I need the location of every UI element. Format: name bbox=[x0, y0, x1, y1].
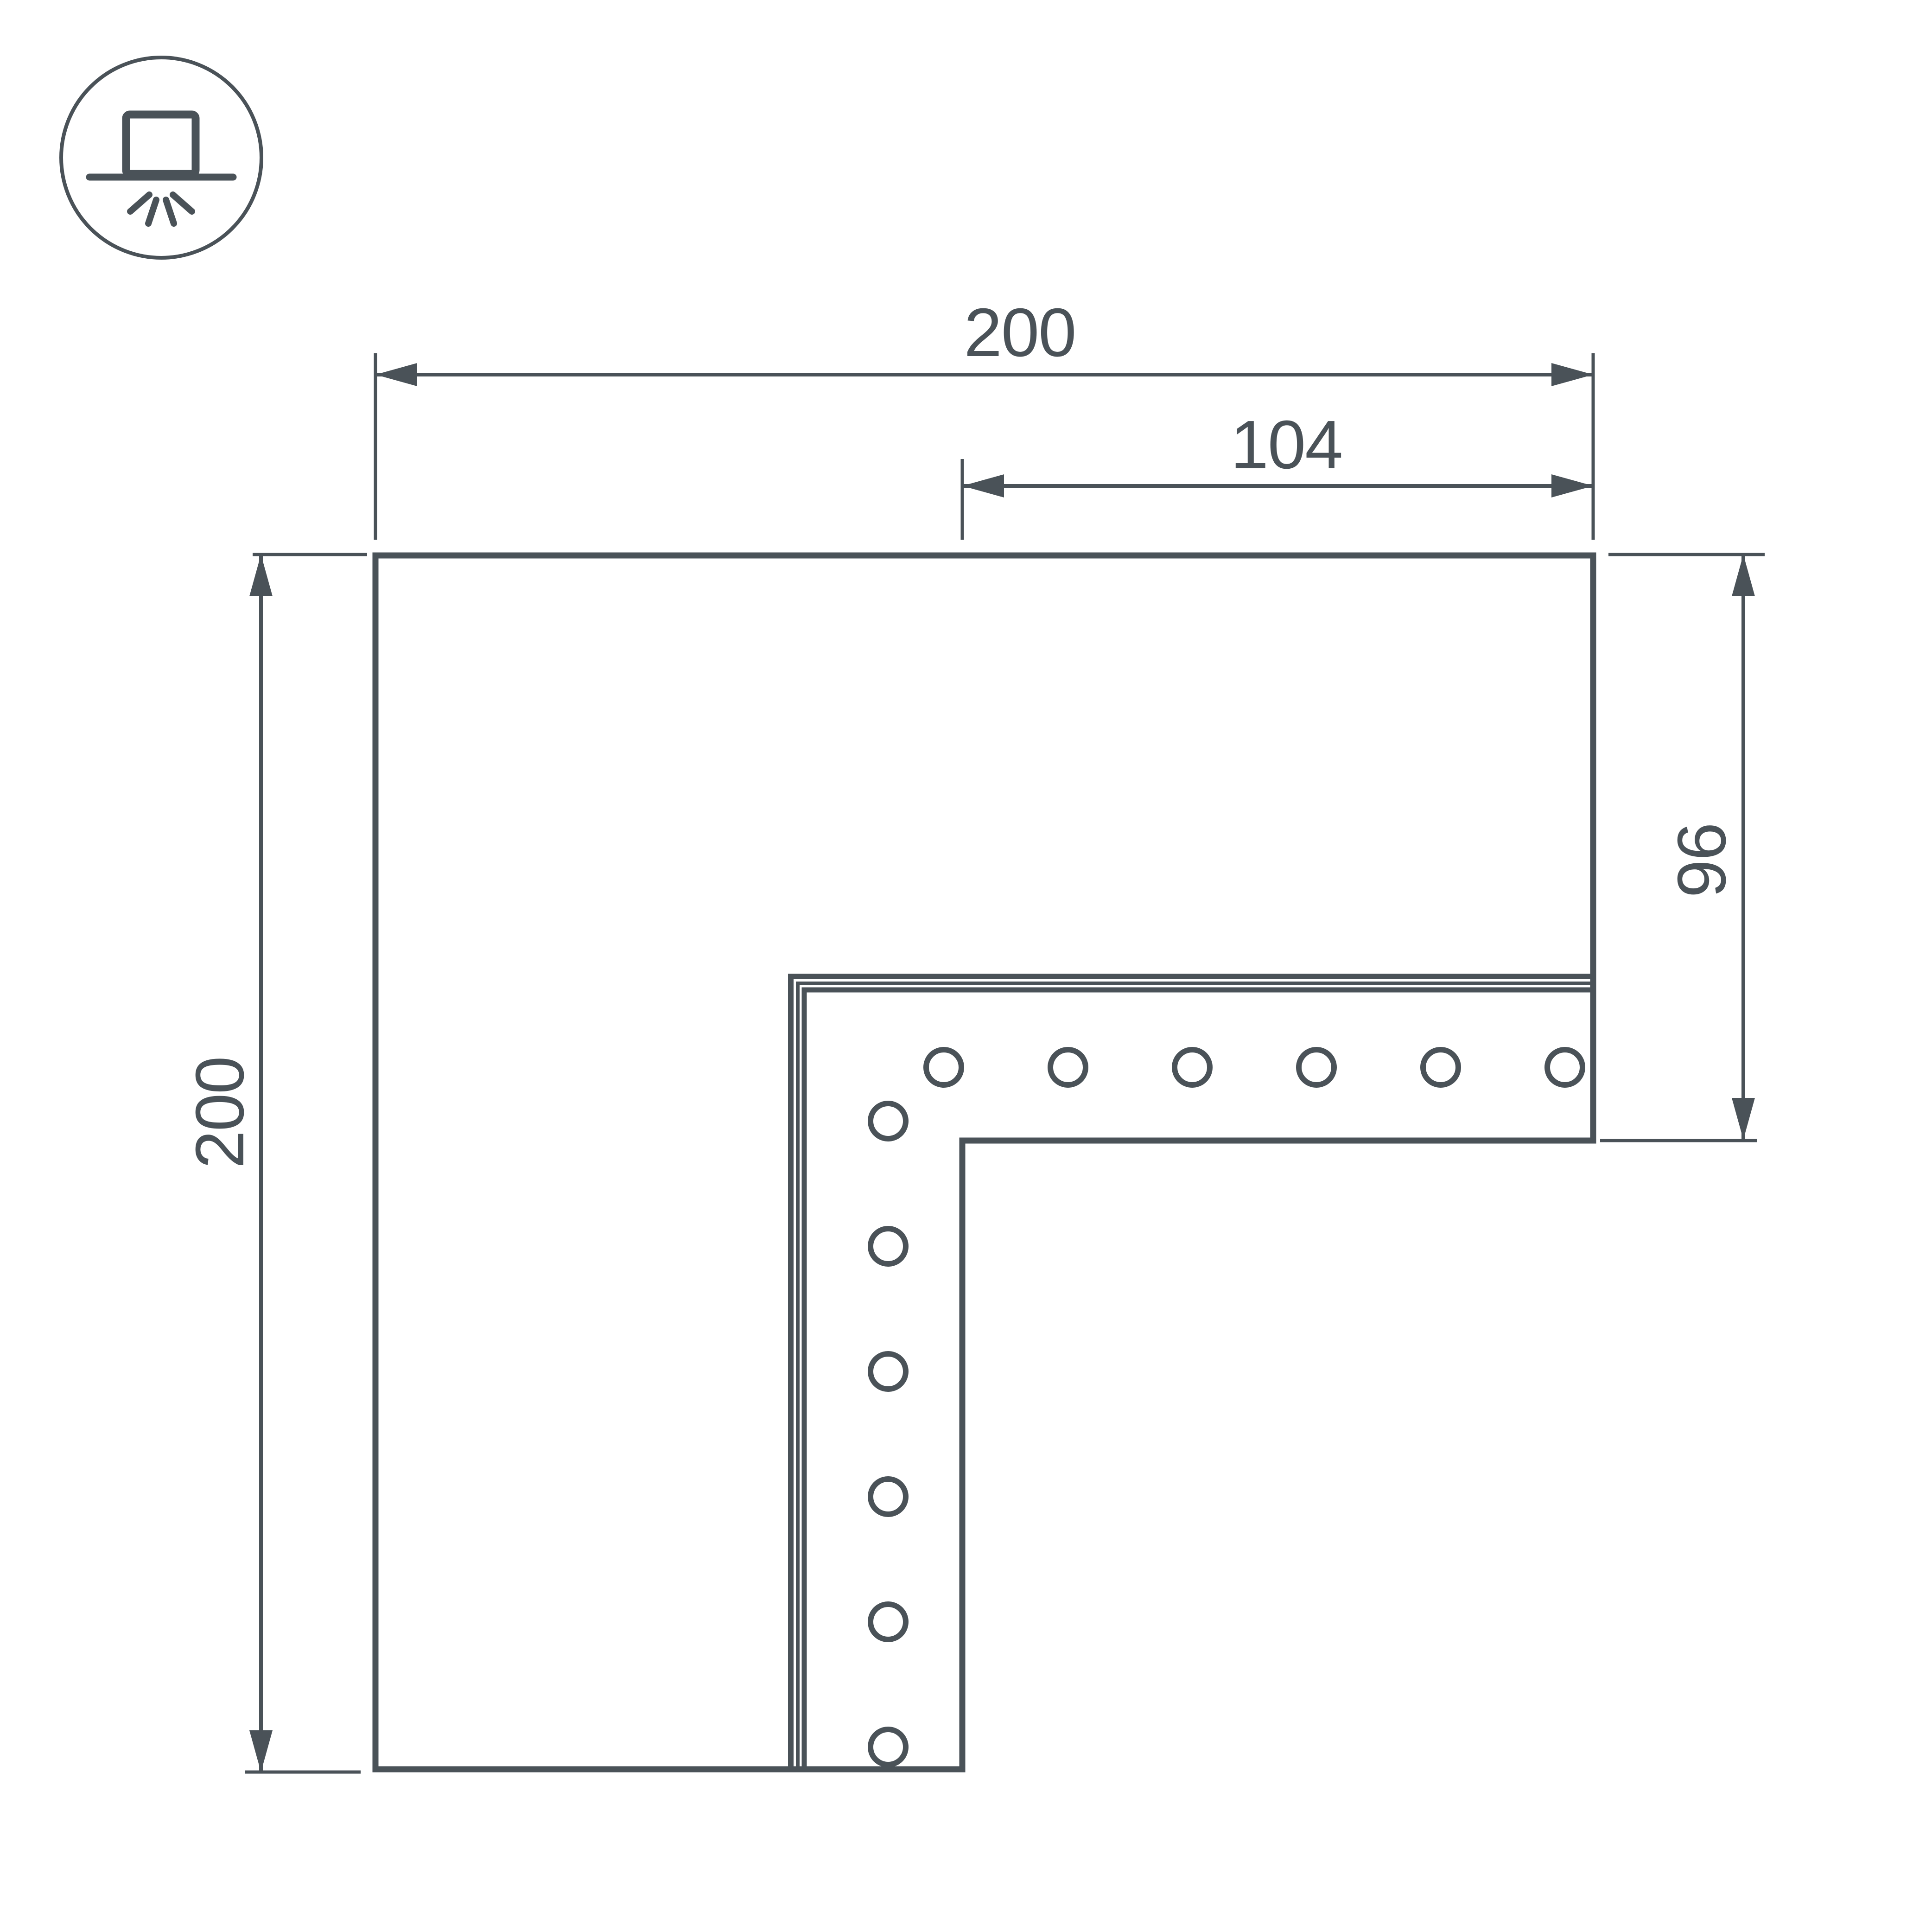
connector-holes bbox=[871, 1050, 1582, 1765]
arrow-right-icon bbox=[1551, 363, 1593, 386]
icon-box bbox=[126, 115, 196, 174]
dim-left-height bbox=[245, 555, 367, 1772]
dim-inner-width-label: 104 bbox=[1231, 407, 1342, 483]
dim-top-width-label: 200 bbox=[964, 294, 1076, 371]
technical-drawing: 200 104 200 96 bbox=[0, 0, 1932, 1932]
drawing-page: 200 104 200 96 bbox=[0, 0, 1932, 1932]
arrow-left-icon bbox=[375, 363, 417, 386]
arrow-down-icon bbox=[249, 1730, 273, 1772]
arrow-down-icon bbox=[1732, 1098, 1755, 1140]
arrow-up-icon bbox=[1732, 555, 1755, 596]
arrow-left-icon bbox=[962, 474, 1004, 497]
surface-mounted-light-icon bbox=[61, 57, 261, 258]
icon-light-rays bbox=[130, 195, 192, 223]
dim-left-height-label: 200 bbox=[182, 1057, 258, 1169]
dim-right-height-label: 96 bbox=[1664, 823, 1740, 898]
dim-top-width bbox=[375, 353, 1593, 540]
body-outline bbox=[375, 555, 1593, 1769]
arrow-up-icon bbox=[249, 555, 273, 596]
arrow-right-icon bbox=[1551, 474, 1593, 497]
